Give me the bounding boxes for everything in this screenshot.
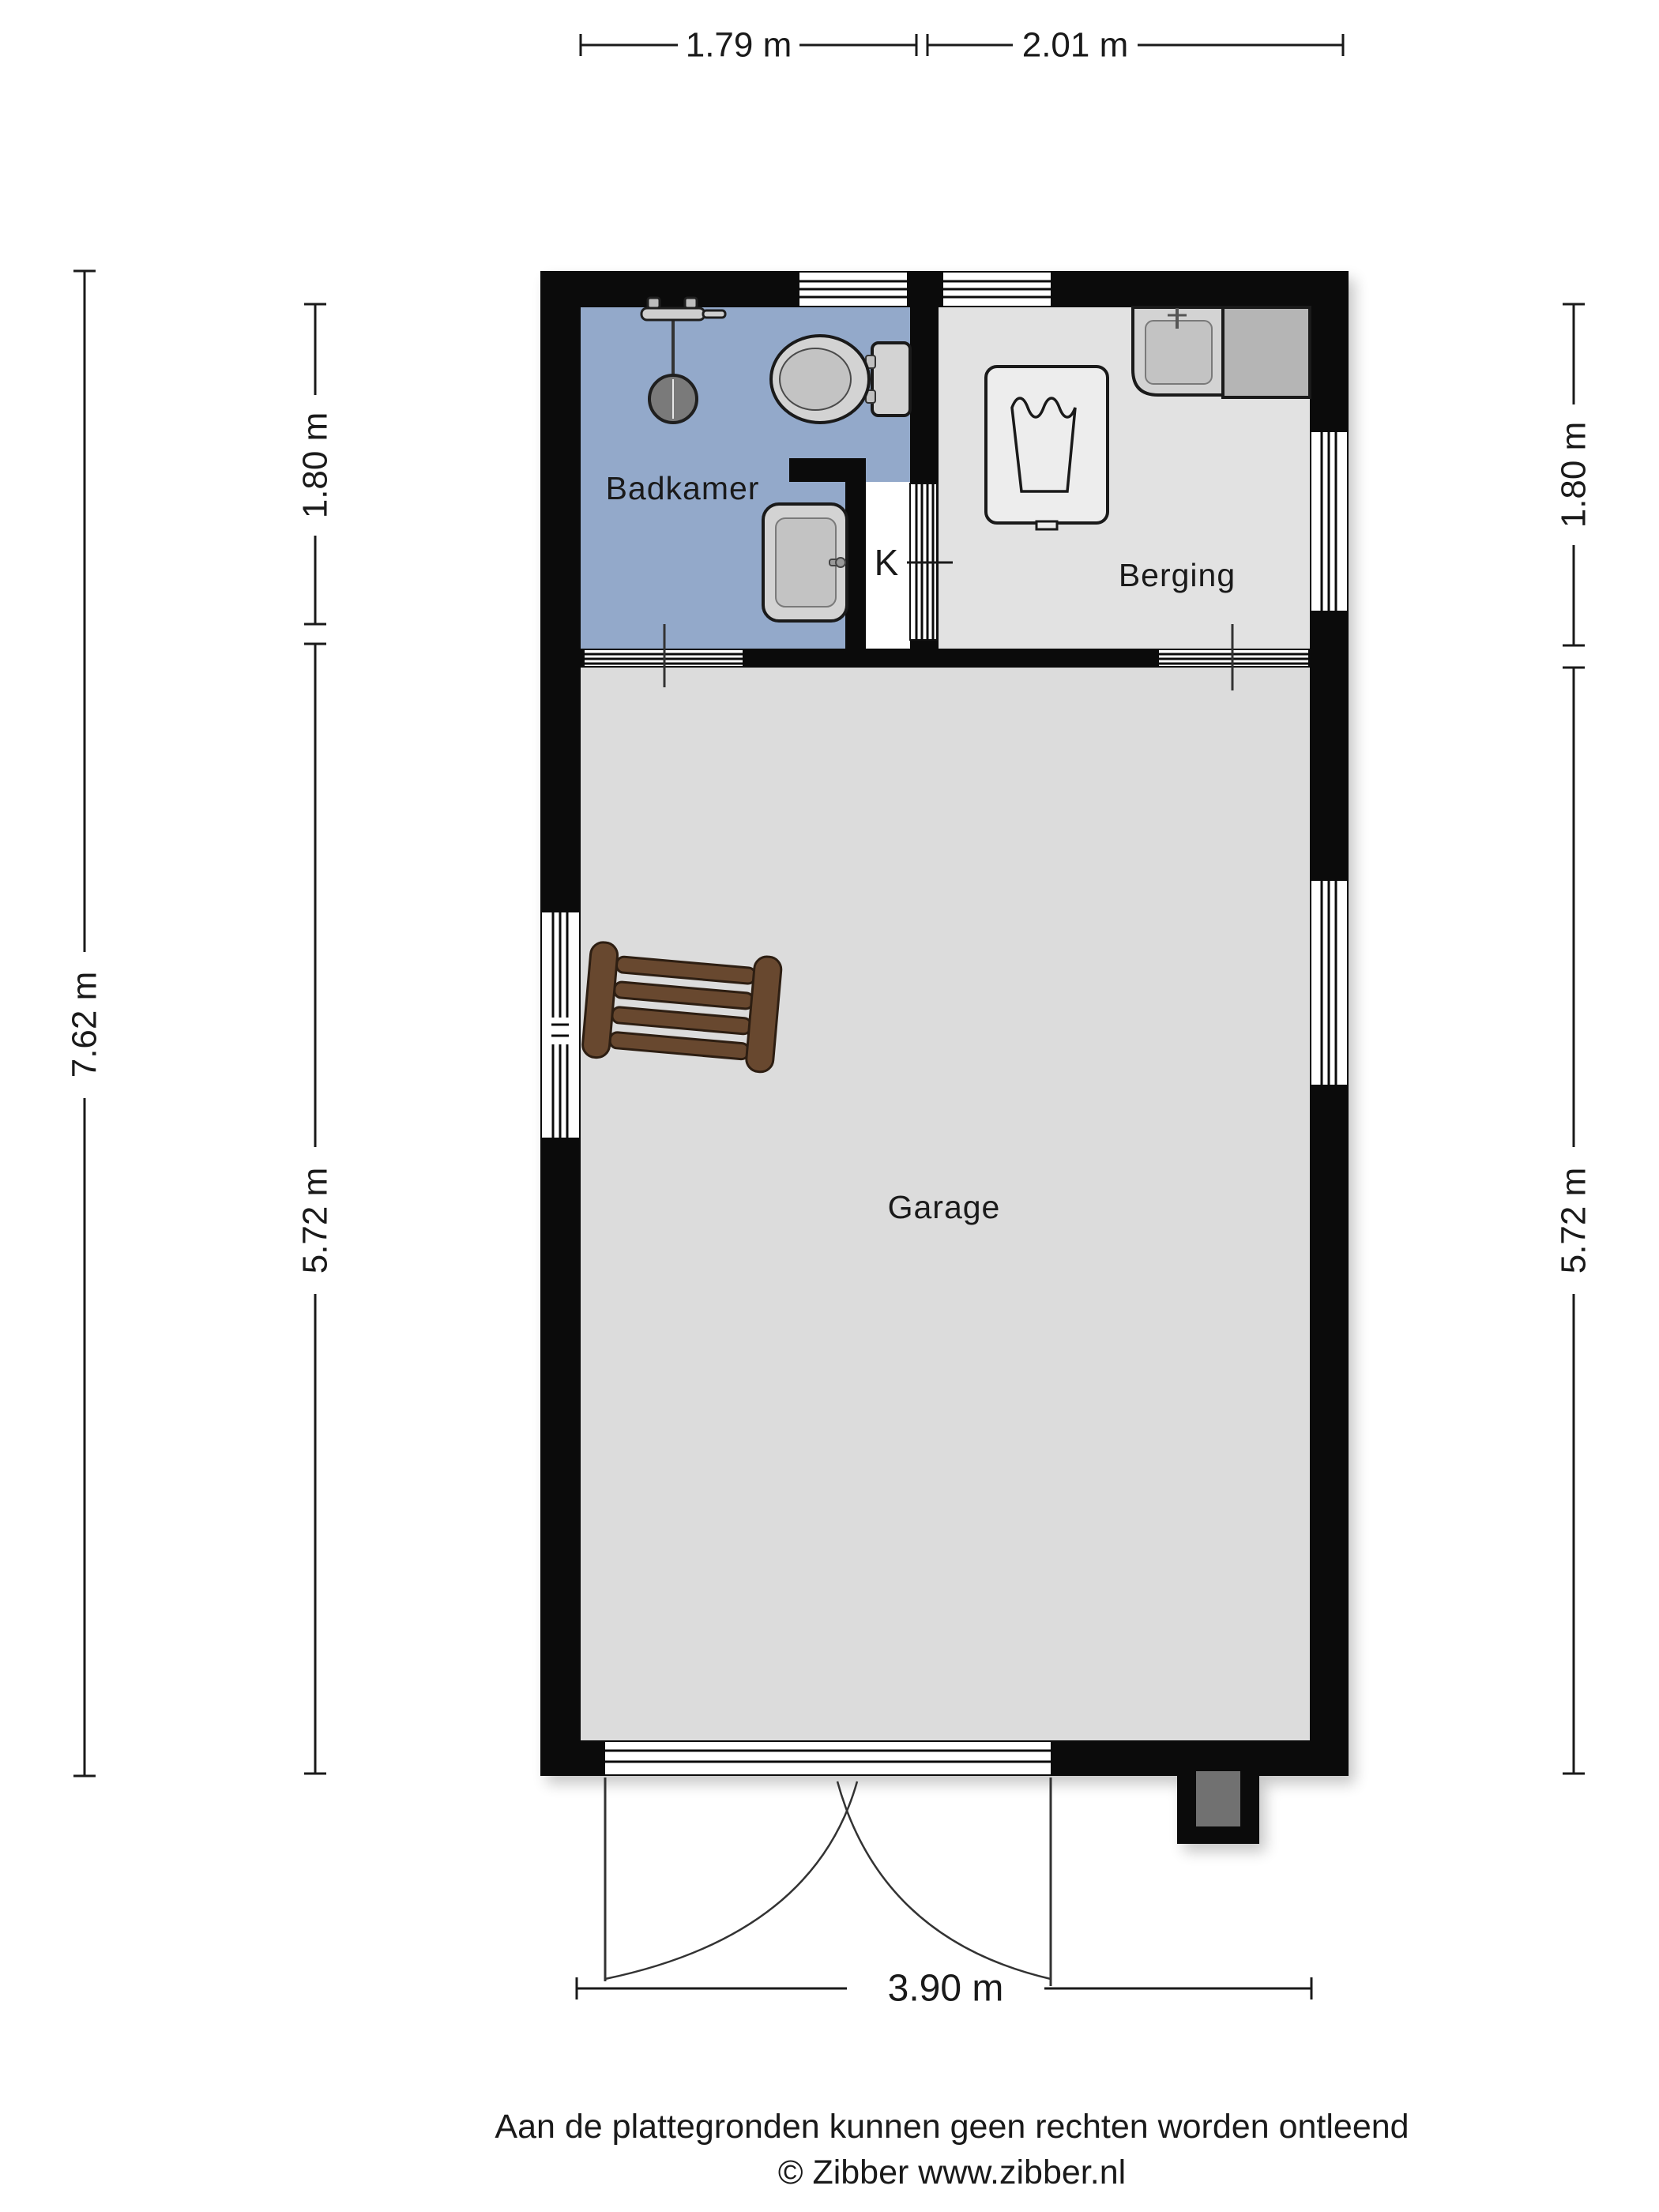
bathroom-sink-icon <box>763 504 847 621</box>
garage-label: Garage <box>888 1189 1001 1225</box>
svg-text:7.62 m: 7.62 m <box>66 972 104 1078</box>
dimension-left-inner-1: 1.80 m <box>296 304 335 624</box>
floor-plan: Badkamer Berging Garage K 1.79 m 2.01 m … <box>0 0 1659 2212</box>
svg-text:1.79 m: 1.79 m <box>686 26 792 65</box>
svg-text:5.72 m: 5.72 m <box>296 1168 335 1274</box>
wall-protrusion <box>1177 1740 1259 1844</box>
dimension-bottom: 3.90 m <box>577 1968 1311 2010</box>
top-window-berging <box>943 273 1051 306</box>
utility-sink-icon <box>1133 307 1310 397</box>
svg-text:3.90 m: 3.90 m <box>888 1968 1004 2010</box>
dimension-left-inner-2: 5.72 m <box>296 644 335 1774</box>
right-window-berging <box>1311 432 1347 611</box>
svg-text:1.80 m: 1.80 m <box>1555 422 1593 529</box>
top-window-badkamer <box>799 273 907 306</box>
svg-text:5.72 m: 5.72 m <box>1555 1168 1593 1274</box>
badkamer-label: Badkamer <box>606 470 760 506</box>
svg-text:2.01 m: 2.01 m <box>1022 26 1129 65</box>
footer-disclaimer: Aan de plattegronden kunnen geen rechten… <box>495 2108 1409 2146</box>
berging-label: Berging <box>1119 557 1236 593</box>
svg-text:K: K <box>875 542 899 583</box>
dimension-top-2: 2.01 m <box>927 26 1343 65</box>
dimension-left-outer: 7.62 m <box>66 271 104 1776</box>
footer-credit: © Zibber www.zibber.nl <box>778 2154 1126 2191</box>
right-window-garage <box>1311 881 1347 1085</box>
toilet-icon <box>771 336 910 423</box>
dimension-top-1: 1.79 m <box>581 26 916 65</box>
washing-machine-icon <box>986 367 1108 529</box>
svg-text:1.80 m: 1.80 m <box>296 412 335 519</box>
left-window-garage <box>542 912 579 1138</box>
dimension-right-2: 5.72 m <box>1555 668 1593 1774</box>
dimension-right-1: 1.80 m <box>1555 304 1593 645</box>
